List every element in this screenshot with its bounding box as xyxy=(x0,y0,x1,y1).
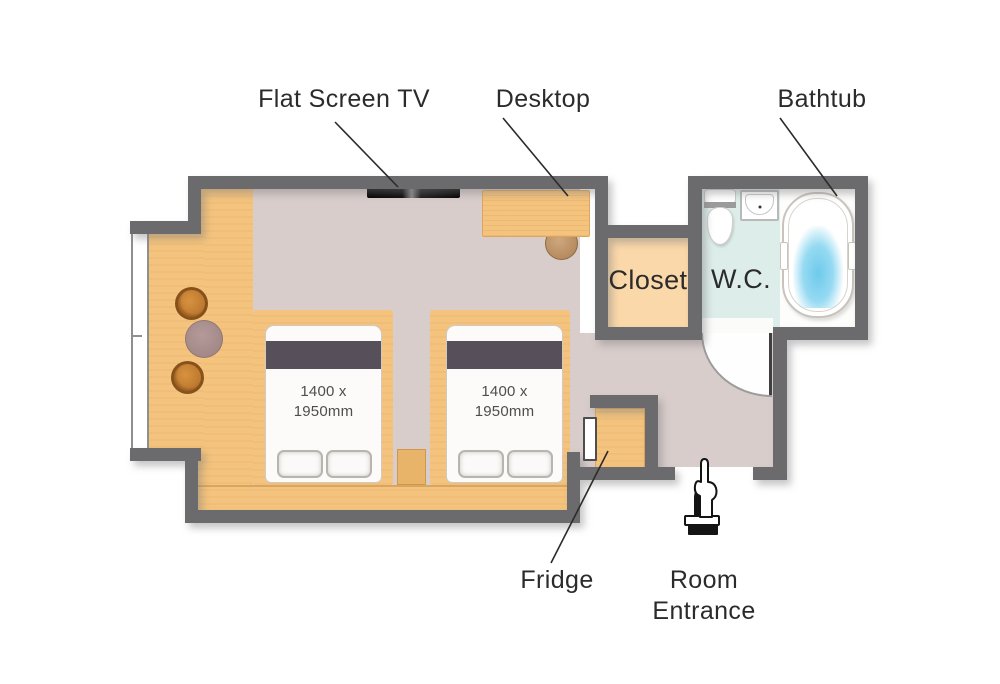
bathtub-handle xyxy=(780,242,788,270)
desk xyxy=(482,190,590,237)
pillow xyxy=(277,450,323,478)
bed-size-label: 1400 x 1950mm xyxy=(447,382,562,422)
floor-plan: 1400 x 1950mm 1400 x 1950mm xyxy=(0,0,1000,684)
bed-size-line1: 1400 x xyxy=(266,382,381,402)
door-leaf xyxy=(769,333,772,395)
round-table xyxy=(185,320,223,358)
furniture-layer: 1400 x 1950mm 1400 x 1950mm xyxy=(0,0,1000,684)
flat-screen-tv xyxy=(367,186,460,198)
sink-drain xyxy=(758,205,761,208)
bed: 1400 x 1950mm xyxy=(446,325,563,483)
bed-size-line2: 1950mm xyxy=(447,402,562,422)
bathtub-handle xyxy=(848,242,856,270)
window xyxy=(131,234,149,448)
pillow xyxy=(326,450,372,478)
nightstand xyxy=(397,449,426,485)
toilet-icon xyxy=(707,207,733,245)
chair xyxy=(171,361,204,394)
fridge-cabinet xyxy=(595,408,645,470)
pointing-hand-icon xyxy=(680,456,726,536)
sink-icon xyxy=(740,190,779,221)
bathtub xyxy=(782,192,854,318)
bed-blanket-stripe xyxy=(266,341,381,369)
door-swing-arc xyxy=(701,333,772,397)
bed-size-line1: 1400 x xyxy=(447,382,562,402)
chair xyxy=(175,287,208,320)
bed-size-line2: 1950mm xyxy=(266,402,381,422)
bed-headboard-platform xyxy=(198,485,567,512)
bathtub-water xyxy=(793,226,843,308)
pillow xyxy=(458,450,504,478)
bed-size-label: 1400 x 1950mm xyxy=(266,382,381,422)
bed: 1400 x 1950mm xyxy=(265,325,382,483)
pillow xyxy=(507,450,553,478)
bed-blanket-stripe xyxy=(447,341,562,369)
fridge xyxy=(583,417,597,461)
